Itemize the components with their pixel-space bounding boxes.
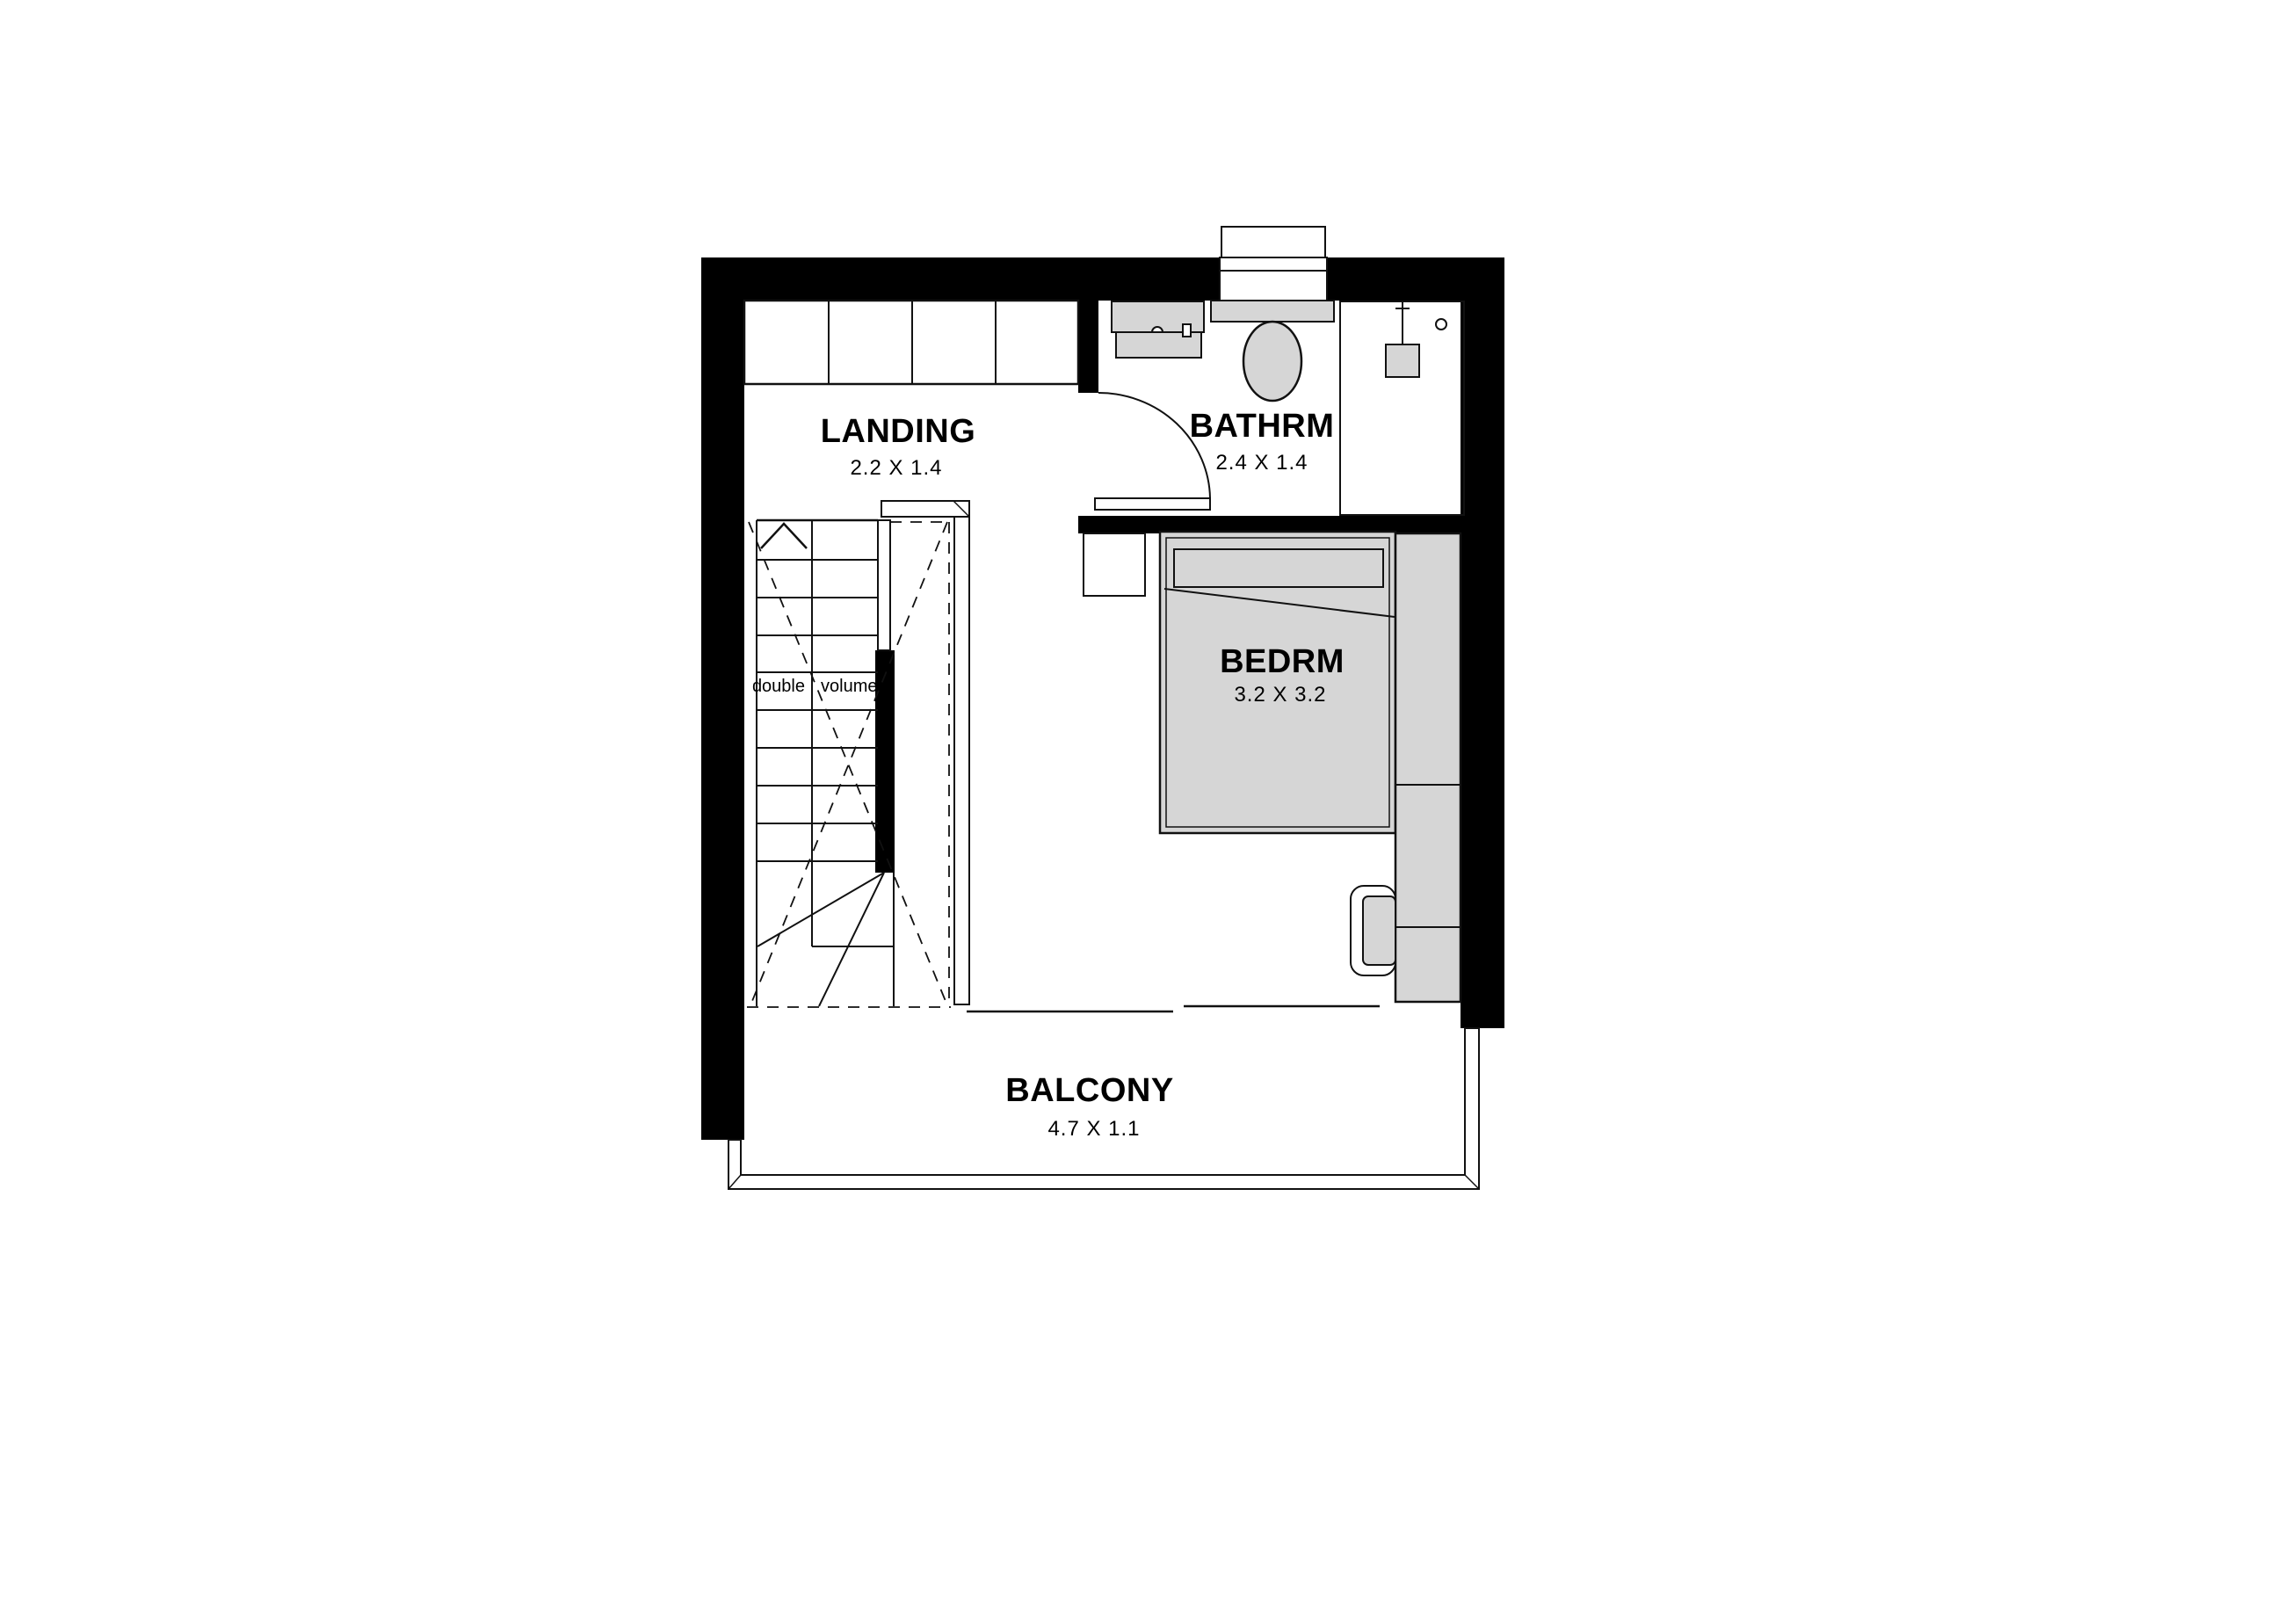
double-volume-note-left: double	[752, 677, 805, 696]
floor-plan: LANDING 2.2 X 1.4 BATHRM 2.4 X 1.4	[0, 0, 2276, 1624]
shower-drain	[1436, 319, 1446, 330]
wall-stair-handrail	[875, 650, 895, 873]
wall-left	[701, 257, 744, 1140]
bathroom: BATHRM 2.4 X 1.4	[1095, 301, 1464, 515]
toilet-bowl	[1243, 322, 1301, 401]
wall-landing-bathroom-divider	[1078, 301, 1098, 393]
desk-chair-seat	[1363, 896, 1395, 965]
bathroom-label: BATHRM	[1190, 408, 1335, 445]
shower-head	[1386, 344, 1419, 377]
bedroom-dims: 3.2 X 3.2	[1234, 683, 1326, 707]
landing-label: LANDING	[821, 413, 976, 450]
wardrobe-desk-unit	[1395, 533, 1461, 1002]
void-diagonal-1	[749, 522, 947, 1005]
window-outer-sill	[1221, 227, 1325, 257]
wall-top	[701, 257, 1504, 301]
bed-pillow	[1174, 549, 1383, 587]
basin-tap	[1152, 327, 1163, 332]
balcony-label: BALCONY	[1005, 1072, 1173, 1109]
double-volume-note-right: volume	[821, 677, 877, 696]
balcony-dims: 4.7 X 1.1	[1047, 1117, 1140, 1141]
stair-railing-right	[954, 517, 969, 1004]
floor-plan-page: LANDING 2.2 X 1.4 BATHRM 2.4 X 1.4	[0, 0, 2276, 1624]
window-opening	[1220, 257, 1327, 301]
stair-railing-upper	[878, 520, 890, 650]
bathroom-window	[1220, 227, 1327, 301]
bathroom-door-leaf	[1095, 498, 1210, 510]
bathroom-dims: 2.4 X 1.4	[1215, 451, 1308, 475]
winder-tread-2	[819, 873, 884, 1006]
stairs-up-arrow	[761, 524, 807, 548]
stair-treads	[757, 560, 878, 861]
stairs: double volume	[747, 501, 969, 1007]
toilet-cistern	[1211, 301, 1334, 322]
wall-right	[1461, 257, 1504, 1028]
landing-dims: 2.2 X 1.4	[850, 456, 942, 480]
nightstand	[1084, 533, 1145, 596]
basin-fitting	[1183, 324, 1191, 337]
winder-tread-1	[757, 873, 884, 946]
bedroom-label: BEDRM	[1220, 643, 1345, 680]
bedroom: BEDRM 3.2 X 3.2	[967, 532, 1461, 1011]
landing: LANDING 2.2 X 1.4	[744, 301, 1078, 480]
balcony: BALCONY 4.7 X 1.1	[728, 1028, 1479, 1189]
